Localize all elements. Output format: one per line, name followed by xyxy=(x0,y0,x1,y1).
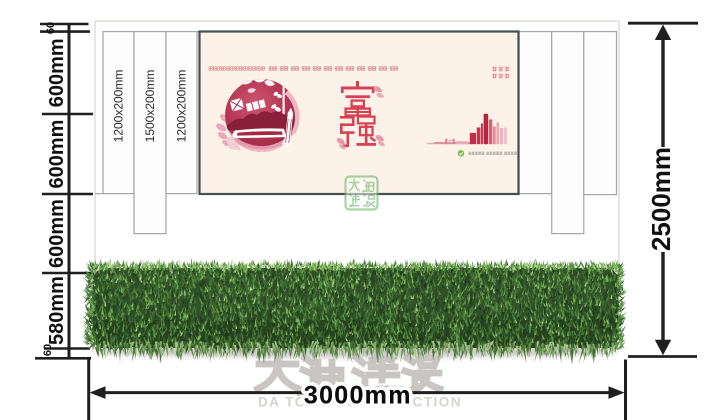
svg-text:60: 60 xyxy=(42,344,54,356)
svg-text:600mm: 600mm xyxy=(46,120,68,189)
svg-text:3000mm: 3000mm xyxy=(304,381,412,409)
svg-text:580mm: 580mm xyxy=(46,276,68,345)
svg-text:1200x200mm: 1200x200mm xyxy=(175,70,189,143)
svg-text:60: 60 xyxy=(45,22,57,34)
svg-text:1200x200mm: 1200x200mm xyxy=(112,70,126,143)
svg-text:600mm: 600mm xyxy=(46,38,68,107)
svg-text:1500x200mm: 1500x200mm xyxy=(143,70,157,143)
svg-text:600mm: 600mm xyxy=(46,199,68,268)
svg-text:2500mm: 2500mm xyxy=(646,147,676,251)
